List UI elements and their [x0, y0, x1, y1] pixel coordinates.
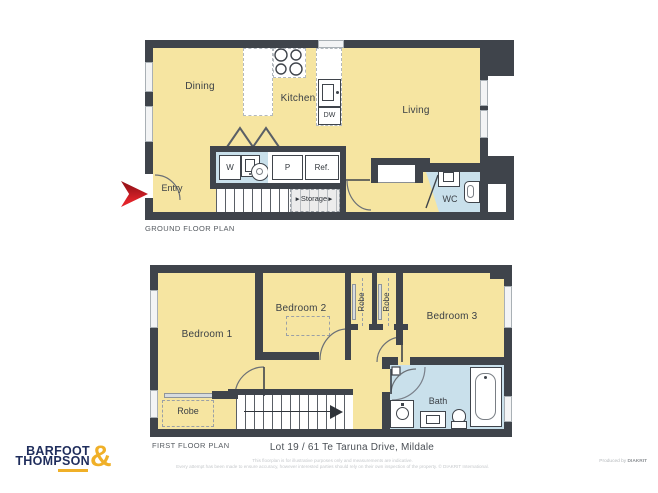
wc-toilet: [464, 181, 480, 203]
wall-block: [490, 265, 512, 279]
wc-toilet-bowl: [467, 185, 474, 198]
credit-prefix: Produced by: [599, 459, 627, 464]
wall-segment: [371, 158, 378, 183]
pantry-label: P: [285, 163, 290, 172]
wall-segment: [345, 324, 358, 330]
wall-segment: [210, 183, 340, 189]
bathtub: [470, 367, 502, 427]
washing-machine: W: [219, 155, 241, 180]
credit-brand: DIAKRIT: [628, 459, 647, 464]
washer-label: W: [226, 163, 234, 172]
wall-segment: [145, 212, 514, 220]
bedroom2-door-arc: [319, 328, 348, 361]
wall-segment: [506, 184, 514, 220]
logo-tagline-bar: [58, 469, 88, 472]
window: [318, 40, 344, 48]
produced-by-credit: Produced by DIAKRIT: [565, 459, 647, 464]
room-label-living: Living: [379, 105, 453, 116]
window: [150, 290, 158, 328]
wall-segment: [210, 146, 346, 152]
wall-segment: [255, 352, 319, 360]
wall-segment: [228, 389, 353, 395]
room-label-bath: Bath: [422, 396, 454, 406]
bathtub-tap: [484, 376, 487, 379]
laundry-tub: [251, 163, 269, 181]
room-label-dining: Dining: [163, 81, 237, 92]
room-label-bedroom2: Bedroom 2: [264, 303, 338, 314]
wall-segment: [150, 429, 512, 437]
first-floor-caption: FIRST FLOOR PLAN: [152, 441, 230, 450]
bath-vanity: [390, 400, 414, 428]
dishwasher: DW: [318, 107, 341, 125]
bath-toilet-tank: [451, 421, 467, 429]
pantry: P: [272, 155, 303, 180]
entry-direction-arrow-icon: [121, 181, 148, 207]
wall-segment: [410, 357, 512, 365]
wall-segment: [255, 265, 263, 360]
bath-cabinet: [420, 411, 446, 428]
wall-segment: [340, 146, 346, 212]
ground-floor-caption: GROUND FLOOR PLAN: [145, 224, 235, 233]
logo-ampersand: &: [90, 444, 112, 470]
room-label-bedroom3: Bedroom 3: [415, 311, 489, 322]
hall-door-arc: [346, 179, 372, 211]
vanity-tap: [401, 403, 404, 406]
sink-tap: [336, 91, 339, 94]
bedroom1-robe-sliding-door: [164, 393, 214, 398]
wc-label: WC: [438, 194, 462, 204]
window: [504, 396, 512, 422]
wall-segment: [369, 324, 383, 330]
hall-cupboard: [378, 165, 415, 183]
refrigerator: Ref.: [305, 155, 339, 180]
wc-basin-bowl: [443, 172, 454, 182]
bath-door-arc: [390, 368, 417, 395]
robe-label-bedroom1: Robe: [166, 406, 210, 416]
storage-label: ►Storage►: [284, 194, 344, 203]
wall-segment: [394, 324, 408, 330]
barfoot-thompson-logo: BARFOOT THOMPSON &: [10, 444, 130, 480]
bathtub-inner: [475, 373, 496, 420]
disclaimer-line2: Every attempt has been made to ensure ac…: [150, 464, 515, 470]
stair-direction-line: [244, 411, 332, 412]
stair-direction-arrow-icon: [330, 405, 343, 419]
window: [480, 110, 488, 138]
vanity-basin: [396, 407, 409, 420]
window: [480, 80, 488, 106]
wall-segment: [382, 357, 390, 369]
fridge-label: Ref.: [315, 163, 330, 172]
wall-segment: [396, 265, 403, 345]
wall-segment: [345, 265, 351, 360]
wall-segment: [382, 392, 390, 437]
wall-segment: [150, 265, 512, 273]
logo-line2: THOMPSON: [10, 456, 90, 466]
storage-arrow-right: ►: [327, 196, 333, 203]
room-label-bedroom1: Bedroom 1: [170, 329, 244, 340]
dishwasher-label: DW: [324, 112, 336, 119]
window: [150, 390, 158, 418]
window: [504, 286, 512, 328]
window: [145, 106, 153, 142]
room-label-entry: Entry: [150, 183, 194, 193]
wall-segment: [423, 163, 480, 172]
wall-segment: [415, 158, 423, 183]
property-address: Lot 19 / 61 Te Taruna Drive, Mildale: [232, 442, 472, 453]
stove-cooktop-icon: [270, 46, 308, 76]
wall-segment: [372, 265, 377, 330]
laundry-tub-drain: [256, 168, 263, 175]
room-label-kitchen: Kitchen: [261, 93, 335, 104]
window: [145, 62, 153, 92]
storage-text: Storage: [301, 194, 327, 203]
wall-segment: [212, 391, 238, 399]
wall-block: [480, 156, 514, 184]
cabinet-basin: [426, 415, 440, 424]
wall-block: [480, 40, 514, 76]
floor-plan-document: DW W P Ref. ►Storage► WC: [0, 0, 658, 493]
kitchen-counter: [243, 48, 273, 116]
